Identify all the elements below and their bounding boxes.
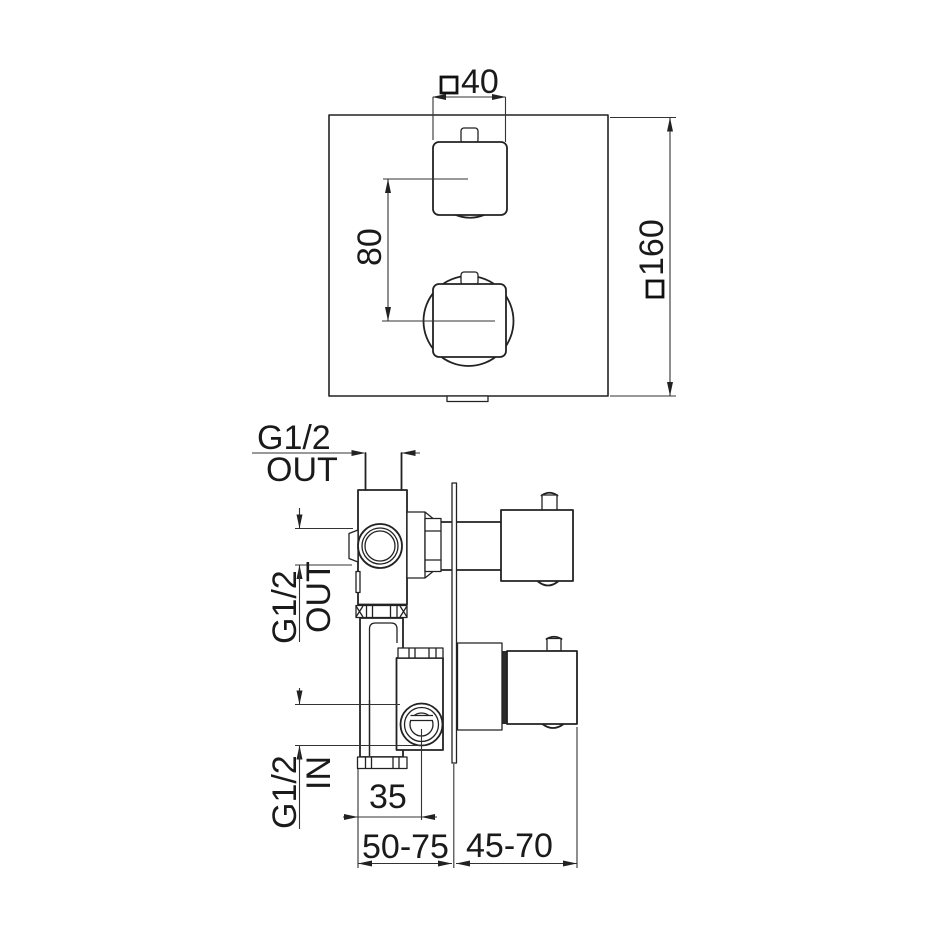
front-outlet-thread: G1/2 xyxy=(266,570,304,644)
pipe-top-nut xyxy=(356,606,407,618)
bottom-escutcheon xyxy=(458,643,503,730)
bottom-handle-tab xyxy=(547,639,561,652)
top-handle-body xyxy=(501,510,573,581)
top-handle-front xyxy=(433,128,507,218)
dimension-handle-projection: 45-70 xyxy=(456,727,577,868)
inlet-valve xyxy=(397,648,444,750)
top-handle-tab xyxy=(542,495,557,511)
shower-valve-technical-drawing: 40 80 160 xyxy=(0,0,950,950)
front-outlet-port: OUT xyxy=(300,561,338,633)
technical-drawing-page: 40 80 160 xyxy=(0,0,950,950)
dim160-arrow-bottom xyxy=(667,382,673,396)
dim35-arrow-left xyxy=(344,814,358,820)
dim4570-arrow-right xyxy=(563,861,577,867)
screw-slot-fill xyxy=(411,716,434,721)
dimension-plate-size: 160 xyxy=(610,118,676,397)
dim35-arrow-right xyxy=(421,814,435,820)
bottom-handle-body xyxy=(507,651,577,724)
bottom-handle-side xyxy=(458,637,578,730)
top-outlet-pipe xyxy=(366,453,402,490)
top-outlet-arrow-left xyxy=(352,450,366,456)
top-handle-side xyxy=(501,493,573,586)
square-symbol-icon xyxy=(441,77,457,93)
top-handle-bottom-arc xyxy=(538,582,558,586)
inlet-port: IN xyxy=(300,756,338,790)
outlet-port-flange xyxy=(349,530,358,562)
outlet-port-bore xyxy=(365,531,395,561)
dim-handle-width-value: 40 xyxy=(461,63,499,101)
cartridge-hex-nut xyxy=(425,519,441,572)
square-symbol-icon xyxy=(647,281,663,297)
top-handle-grip-tab xyxy=(461,128,478,143)
cartridge-neck xyxy=(407,512,425,578)
label-front-outlet: G1/2 OUT xyxy=(266,508,353,644)
top-outlet-arrow-right xyxy=(402,450,416,456)
side-view: G1/2 OUT G1/2 OUT G1/2 xyxy=(252,419,577,868)
dim-handle-projection-value: 45-70 xyxy=(466,827,553,865)
dim-handle-spacing-value: 80 xyxy=(351,228,389,266)
dim-recess-depth-value: 50-75 xyxy=(362,828,449,866)
plate-bottom-tab xyxy=(447,396,488,402)
valve-body xyxy=(349,453,441,605)
dim160-arrow-top xyxy=(667,118,673,132)
front-view: 40 80 160 xyxy=(329,63,676,402)
inlet-arrow-down xyxy=(297,691,303,705)
bottom-handle-grip-tab xyxy=(461,272,478,285)
dim-plate-size-value: 160 xyxy=(633,219,671,276)
top-outlet-port: OUT xyxy=(266,451,338,489)
body-side-lug xyxy=(356,572,360,593)
bottom-handle-front xyxy=(424,272,514,366)
inlet-thread: G1/2 xyxy=(266,755,304,829)
dim40-arrow-left xyxy=(432,94,446,100)
dim-inlet-offset-value: 35 xyxy=(369,778,407,816)
bottom-handle-bottom-arc xyxy=(543,725,563,729)
cartridge-stem-lines xyxy=(441,522,501,570)
label-top-outlet: G1/2 OUT xyxy=(252,419,420,489)
wall-plate-edge xyxy=(452,483,457,763)
front-outlet-arrow-down xyxy=(297,515,303,529)
